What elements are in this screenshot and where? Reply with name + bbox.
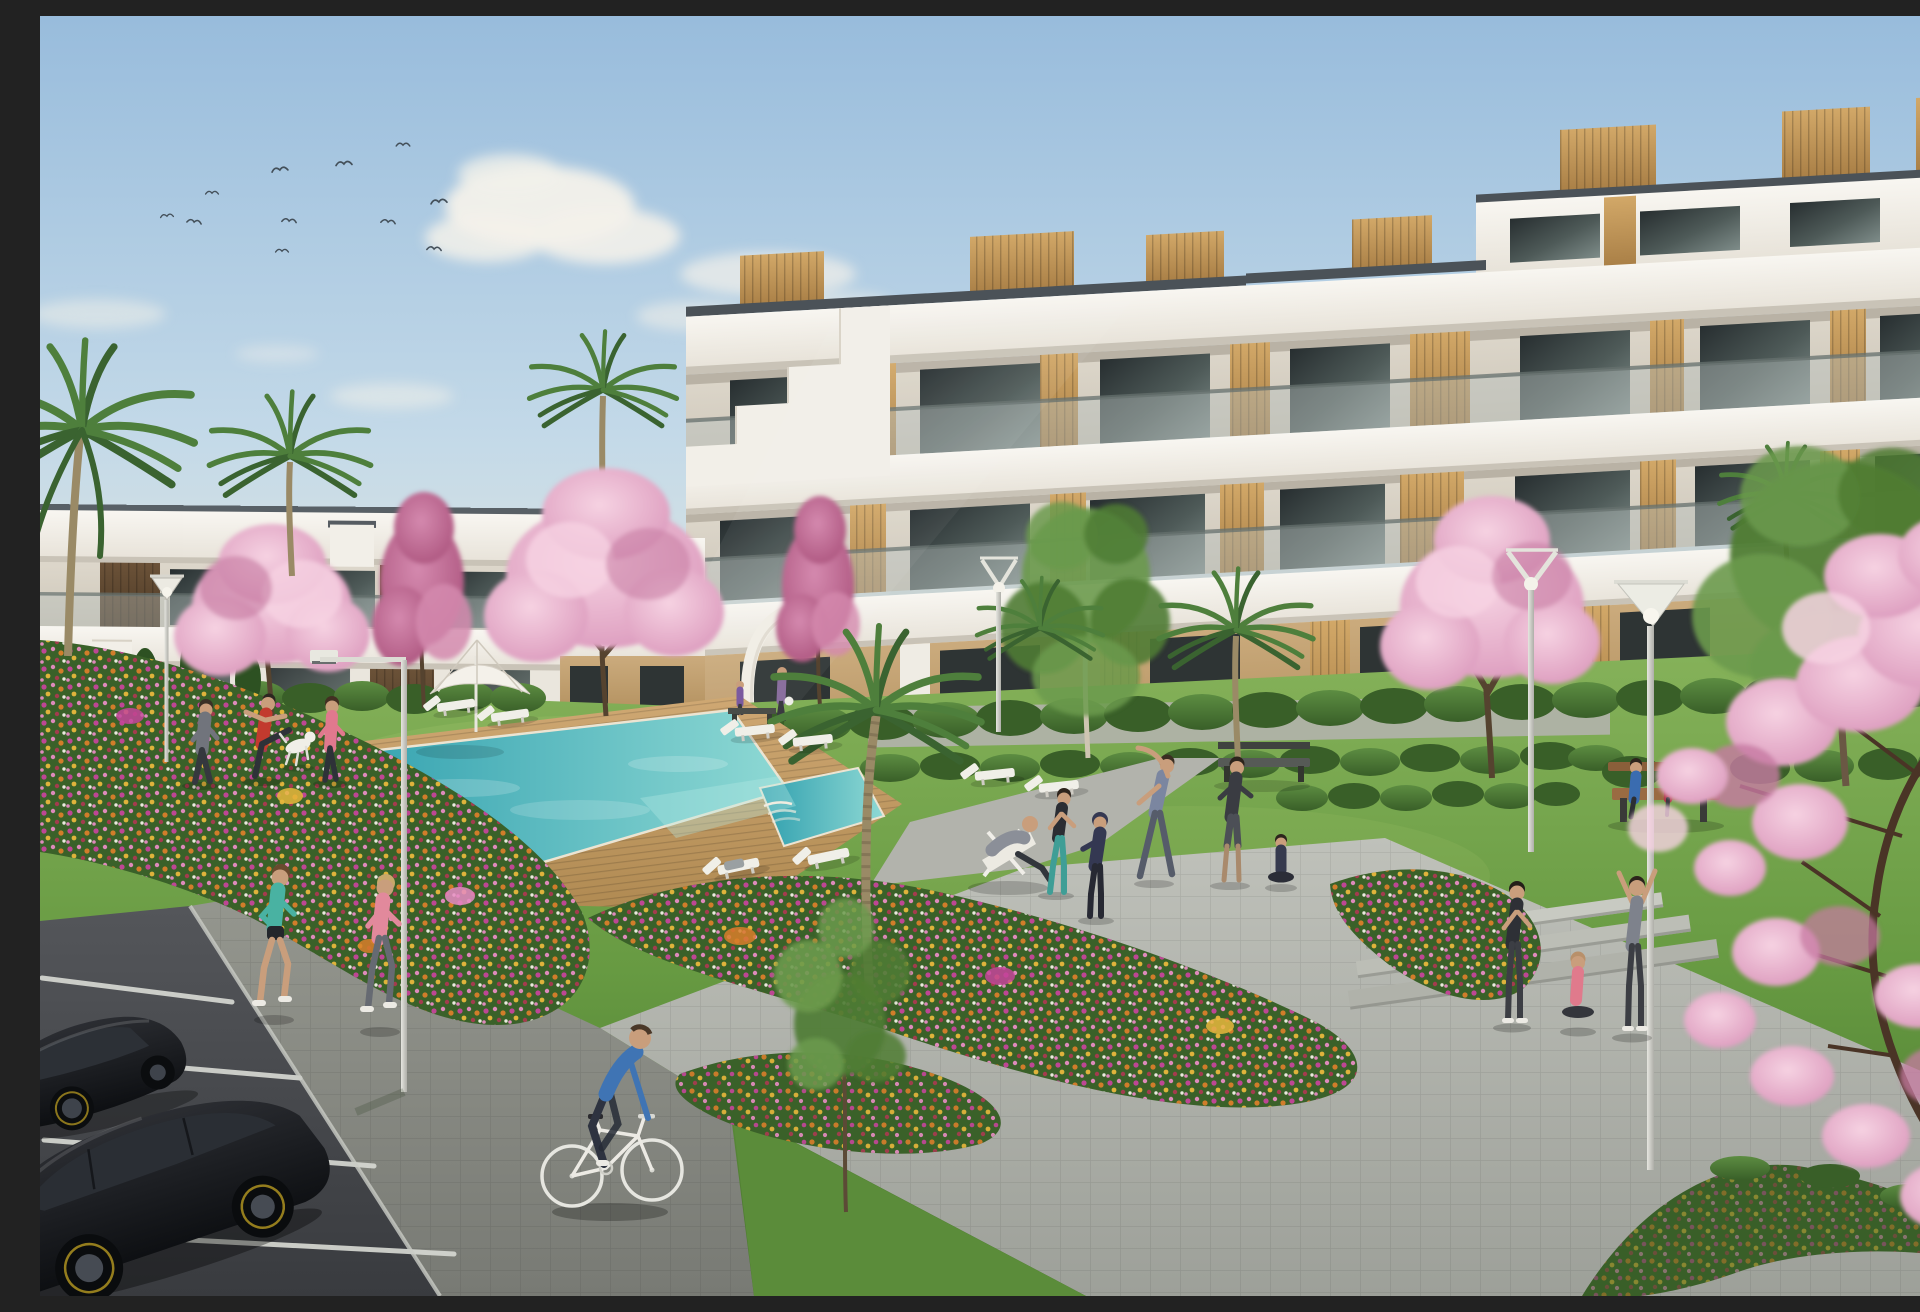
architectural-render [40, 16, 1920, 1296]
scene-canvas [40, 16, 1920, 1296]
